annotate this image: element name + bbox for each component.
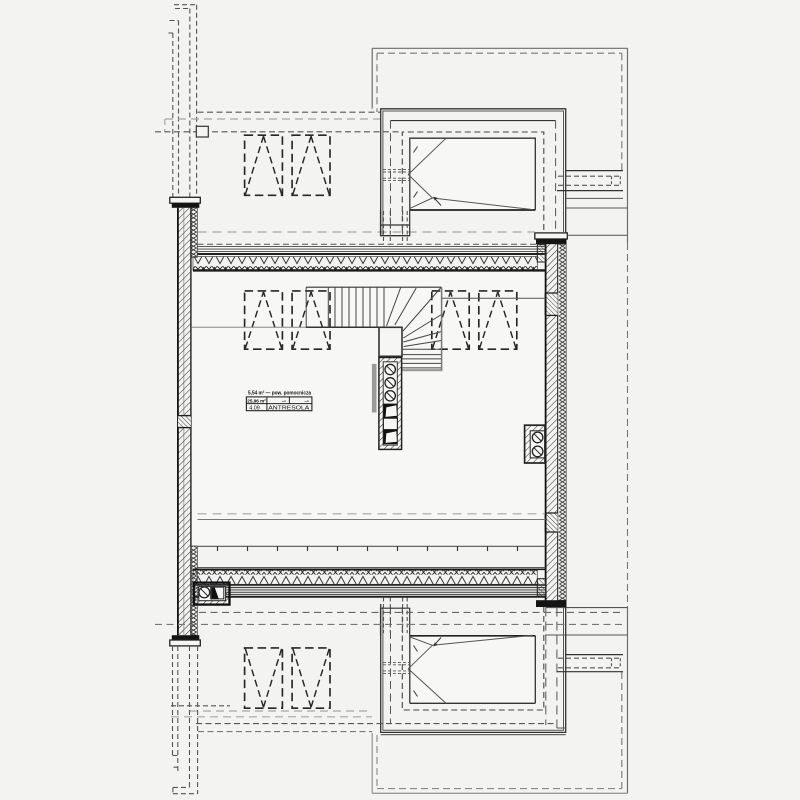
- svg-text:–▪: –▪: [304, 398, 309, 403]
- svg-text:–▪: –▪: [282, 398, 287, 403]
- svg-text:5,54 m² — pow. pomocnicza: 5,54 m² — pow. pomocnicza: [248, 391, 311, 397]
- svg-text:25,96 m²: 25,96 m²: [247, 399, 266, 405]
- svg-text:ANTRESOLA: ANTRESOLA: [268, 406, 310, 412]
- svg-text:4.09: 4.09: [249, 406, 259, 412]
